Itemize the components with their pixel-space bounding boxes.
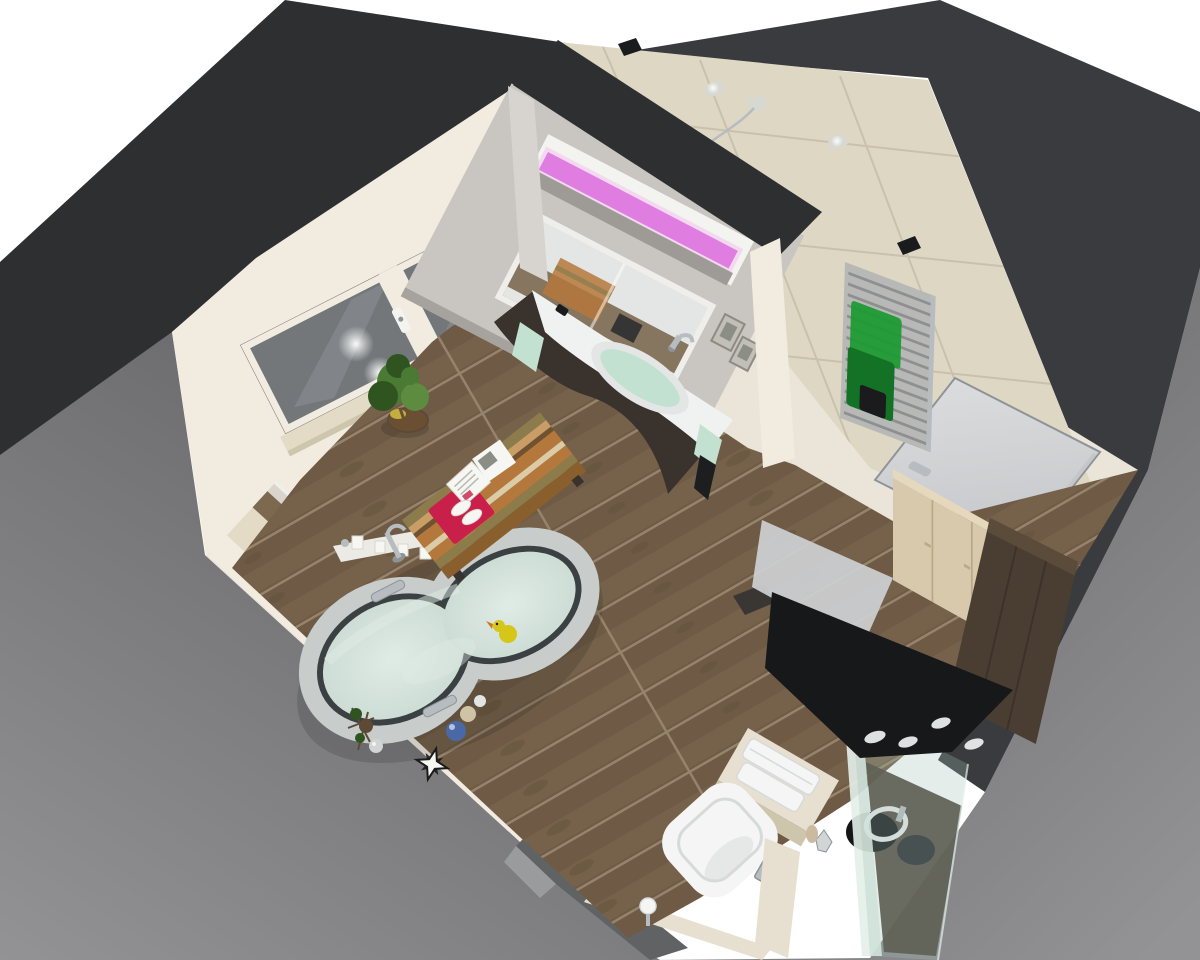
bathroom-3d-render bbox=[0, 0, 1200, 960]
render-viewport bbox=[0, 0, 1200, 960]
floor-glare bbox=[338, 326, 374, 362]
statue bbox=[806, 825, 818, 843]
